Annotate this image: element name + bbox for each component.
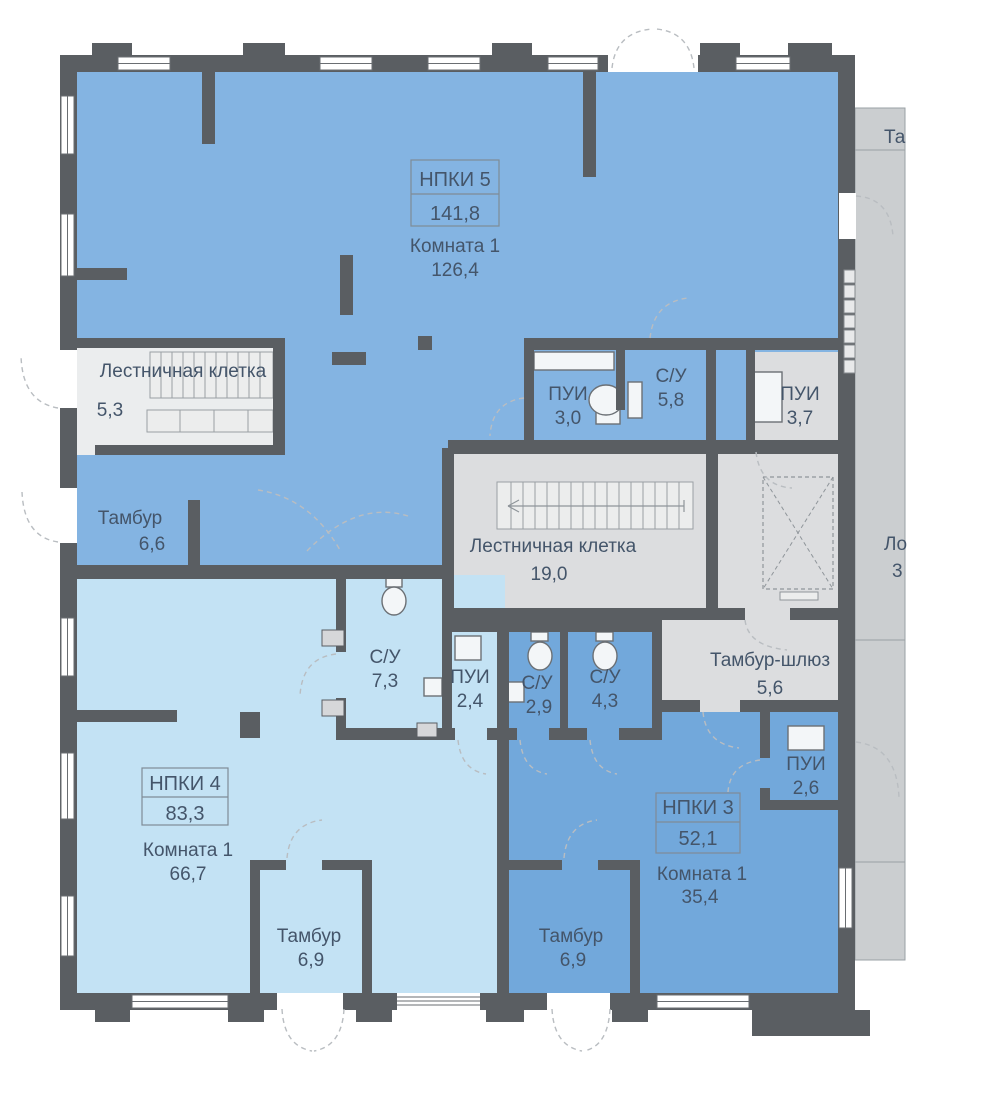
- unit-npki3-name: НПКИ 3: [662, 797, 734, 819]
- basin-fixture: [752, 372, 782, 422]
- su-mid-left-label: С/У: [369, 647, 401, 668]
- entrance-opening-bottom-left: [277, 993, 343, 1010]
- sink-fixture: [424, 678, 442, 696]
- su-top-label: С/У: [655, 366, 687, 387]
- toilet-bowl: [593, 642, 617, 670]
- pui-top-right-area: 3,7: [787, 408, 813, 429]
- tambur-bottom-left-label: Тамбур: [277, 926, 342, 947]
- floor-plan-canvas: НПКИ 5 141,8 Комната 1 126,4 НПКИ 4 83,3…: [0, 0, 1000, 1100]
- su-mid-a-area: 2,9: [526, 697, 552, 718]
- stair-center-label: Лестничная клетка: [470, 536, 637, 557]
- su-mid-left-area: 7,3: [372, 671, 398, 692]
- su-mid-b-label: С/У: [589, 667, 621, 688]
- su-mid-a-label: С/У: [521, 673, 553, 694]
- tambur-bottom-right-label: Тамбур: [539, 926, 604, 947]
- su-mid-b-area: 4,3: [592, 691, 618, 712]
- entrance-opening-left-tambur: [60, 488, 77, 543]
- entrance-opening-bottom-right: [547, 993, 610, 1010]
- toilet-tank: [386, 578, 402, 587]
- unit-npki3-room: Комната 1: [657, 864, 747, 885]
- unit-npki5-name: НПКИ 5: [419, 169, 491, 191]
- unit-npki4-area: 83,3: [166, 803, 205, 825]
- facade-ladder: [844, 270, 855, 373]
- pui-mid-label: ПУИ: [450, 667, 489, 688]
- stair-top-left-label: Лестничная клетка: [100, 361, 267, 382]
- unit-npki3-room-area: 35,4: [682, 887, 719, 908]
- unit-npki5-room: Комната 1: [410, 236, 500, 257]
- tambur-bottom-right-area: 6,9: [560, 950, 586, 971]
- edge-label-mid-right-area: 3: [892, 561, 903, 582]
- unit-npki4-room-area: 66,7: [170, 864, 207, 885]
- tambur-left-label: Тамбур: [98, 508, 163, 529]
- stair-top-left-area: 5,3: [97, 400, 123, 421]
- unit-npki4-room: Комната 1: [143, 840, 233, 861]
- porch-step: [752, 1010, 870, 1036]
- pui-top-right-label: ПУИ: [780, 384, 819, 405]
- tambur-shluz-label: Тамбур-шлюз: [710, 650, 830, 671]
- pui-right-label: ПУИ: [786, 754, 825, 775]
- entrance-opening-top: [608, 55, 698, 72]
- tambur-left-area: 6,6: [139, 534, 165, 555]
- pui-top-area: 3,0: [555, 408, 581, 429]
- toilet-tank: [596, 632, 613, 641]
- stair-center-drawing: [497, 482, 693, 529]
- tambur-shluz-area: 5,6: [757, 678, 783, 699]
- su-top-area: 5,8: [658, 390, 684, 411]
- edge-label-mid-right: Ло: [884, 534, 907, 555]
- counter-fixture: [534, 352, 614, 370]
- pui-right-area: 2,6: [793, 778, 819, 799]
- unit-npki5-area: 141,8: [430, 203, 480, 225]
- unit-npki3-area: 52,1: [679, 828, 718, 850]
- unit-npki5-room-area: 126,4: [431, 260, 479, 281]
- floor-plan: НПКИ 5 141,8 Комната 1 126,4 НПКИ 4 83,3…: [0, 0, 1000, 1100]
- stair-center-area: 19,0: [531, 564, 568, 585]
- pui-mid-area: 2,4: [457, 691, 484, 712]
- unit-npki4-name: НПКИ 4: [149, 773, 221, 795]
- loggia-door-opening: [839, 193, 856, 239]
- toilet-tank: [628, 382, 642, 418]
- toilet-bowl: [528, 642, 552, 670]
- entrance-opening-left-stair: [60, 350, 77, 408]
- toilet-tank: [531, 632, 548, 641]
- corridor-floor: [712, 440, 838, 620]
- sink-fixture: [788, 726, 824, 750]
- toilet-bowl: [382, 587, 406, 615]
- tambur-bottom-left-area: 6,9: [298, 950, 324, 971]
- pui-top-label: ПУИ: [548, 384, 587, 405]
- edge-label-top-right: Та: [884, 127, 906, 148]
- sink-fixture: [455, 636, 481, 660]
